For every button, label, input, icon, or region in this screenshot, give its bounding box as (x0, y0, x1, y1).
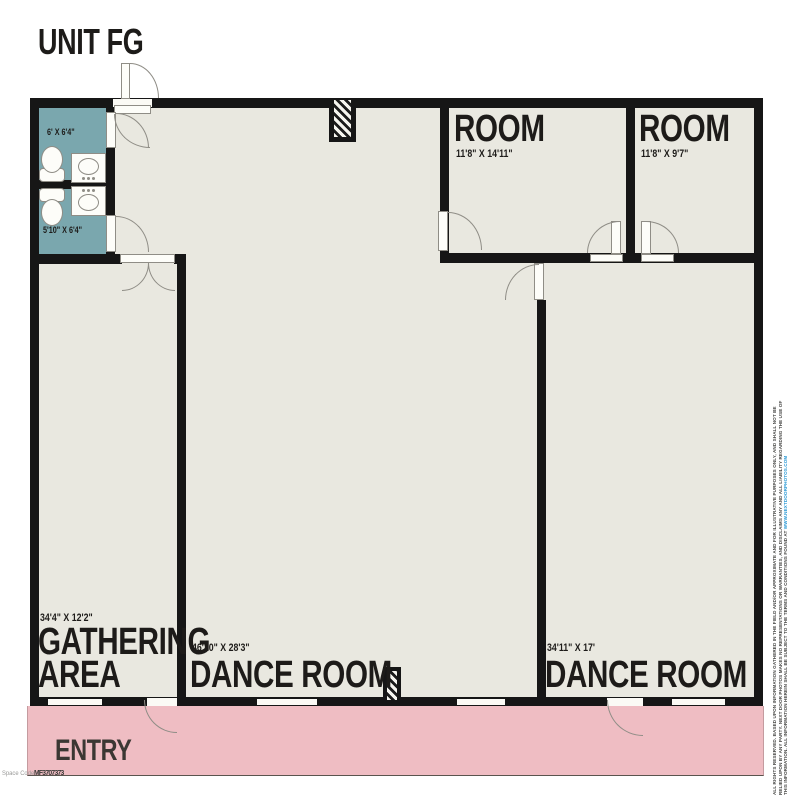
entry-label: ENTRY (55, 736, 131, 766)
space-code-value: MF3707373 (34, 768, 64, 777)
double-door-sill (120, 254, 175, 263)
wall-exterior-right (754, 98, 763, 706)
page-title: UNIT FG (38, 24, 143, 60)
dance-room-right-label: DANCE ROOM (545, 656, 747, 694)
exterior-door-swing (130, 63, 159, 98)
column-top (329, 100, 356, 142)
wall-rooms-divider (626, 98, 635, 263)
dance-room-main-label: DANCE ROOM (190, 656, 392, 694)
toilet-top-bowl (41, 146, 63, 173)
window-dance-main-2 (457, 699, 505, 705)
entry-zone (27, 706, 764, 776)
space-code-label: Space Code (2, 770, 34, 777)
toilet-bottom-bowl (41, 199, 63, 226)
sink-bottom-faucet-icon (87, 189, 90, 192)
window-dance-main-1 (257, 699, 317, 705)
wall-bathroom-bottom (30, 254, 122, 264)
room1-dims: 11'8" X 14'11" (456, 148, 513, 160)
gathering-area-label: GATHERING AREA (38, 626, 210, 692)
dance-room-main-dims: 46'10" X 28'3" (192, 642, 250, 654)
wall-dance-divider (537, 300, 546, 697)
floor-plan-page: UNIT FG (0, 0, 811, 800)
bathroom-bottom-door-leaf (106, 215, 116, 252)
window-gathering (48, 699, 102, 705)
sink-bottom-basin (78, 194, 99, 211)
wall-exterior-left (30, 98, 39, 706)
room1-label: ROOM (454, 110, 545, 148)
gathering-area-label-line2: AREA (38, 659, 210, 692)
bathroom-bottom-dims: 5'10" X 6'4" (43, 225, 82, 235)
disclaimer-text: ALL RIGHTS RESERVED. BASED UPON INFORMAT… (772, 395, 790, 795)
room1-side-door-leaf (438, 211, 448, 251)
room2-dims: 11'8" X 9'7" (641, 148, 688, 160)
room2-door-sill (641, 254, 674, 262)
sink-top-faucet-icon (87, 177, 90, 180)
dance-room-right-dims: 34'11" X 17' (547, 642, 595, 654)
disclaimer-link: WWW.NEXTDOORPHOTOS.COM (783, 456, 788, 530)
room2-label: ROOM (639, 110, 730, 148)
unit-floor (30, 98, 763, 706)
exterior-door-leaf (121, 63, 130, 99)
bathroom-top-dims: 6' X 6'4" (47, 127, 75, 137)
room1-door-sill (590, 254, 623, 262)
disclaimer-line1: ALL RIGHTS RESERVED. BASED UPON INFORMAT… (772, 406, 783, 795)
window-dance-right (672, 699, 725, 705)
sink-top-basin (78, 158, 99, 175)
